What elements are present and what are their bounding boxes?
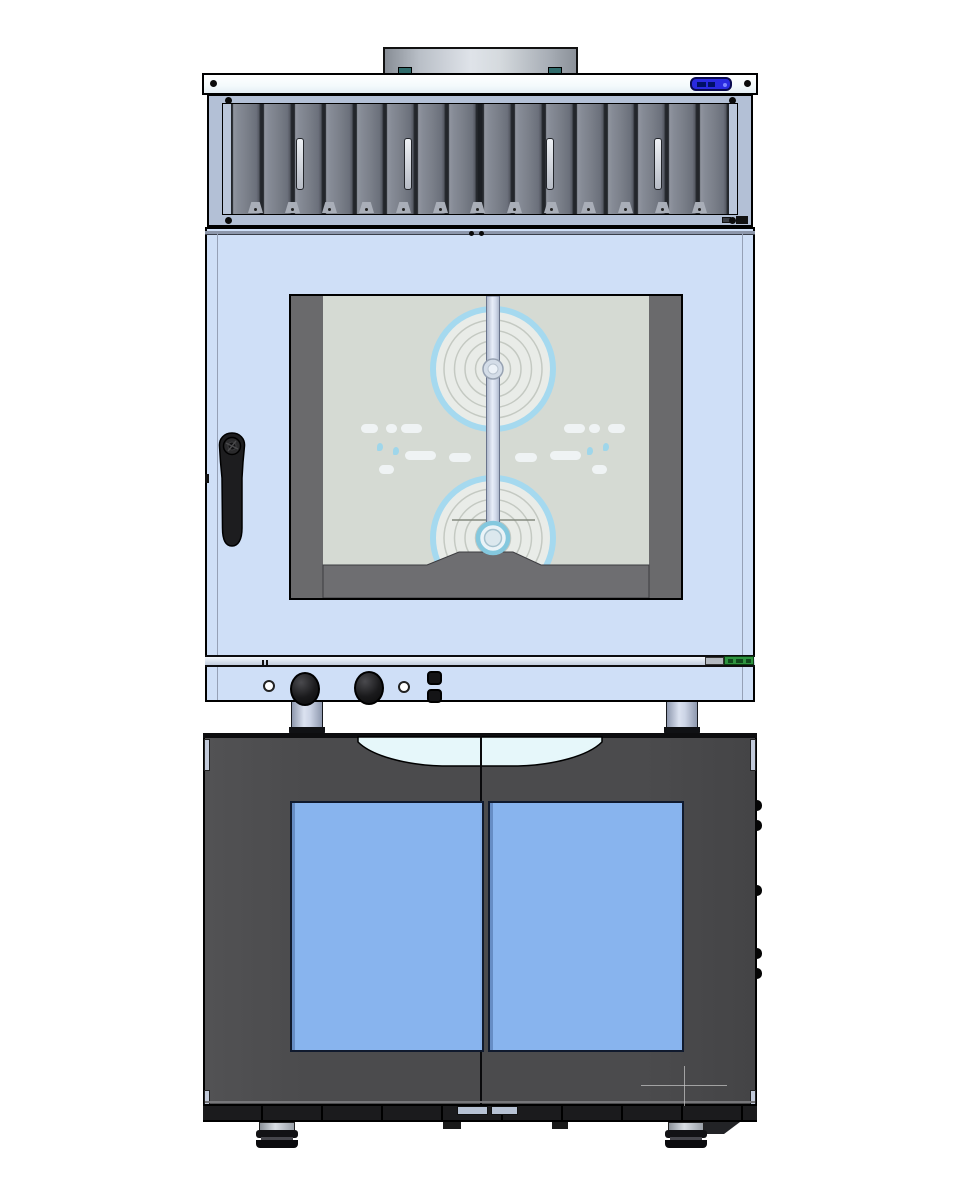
screw-head [729,97,736,104]
oven-stack-render [0,0,970,1200]
separator-tick [262,660,264,665]
oven-leg [291,702,323,737]
seam-rivet [469,231,474,236]
top-cap-panel [202,73,758,95]
base-clip [552,1122,568,1129]
screw-dot [291,208,294,211]
corner-cap [750,739,756,771]
glass-pane [488,801,684,1052]
glass-pane [290,801,484,1052]
hood-slat [231,104,262,214]
steam-vent-pill [589,424,600,433]
hinge-bump [755,820,762,831]
corner-cap [204,739,210,771]
hood-slat [513,104,544,214]
condensation-droplet [377,443,383,451]
hood-slat [667,104,698,214]
hood-filter-handle [654,138,662,190]
oven-leg [666,702,698,737]
hood-latch [736,216,748,224]
indicator-light [398,681,410,693]
condensation-droplet [587,447,593,455]
status-display [690,77,732,91]
hinge-bump [755,968,762,979]
seam-rivet [479,231,484,236]
door-window [289,294,683,600]
hood-slat [636,104,667,214]
control-knob [354,671,384,705]
cabinet-foot-ring [665,1140,707,1148]
push-button [427,671,442,685]
screw-dot [513,208,516,211]
hinge-bump [755,948,762,959]
hood-slat [575,104,606,214]
steam-vent-pill [550,451,581,460]
drain-bracket-wedge [702,1122,740,1134]
steam-vent-pill [379,465,394,474]
cabinet-foot [668,1122,704,1149]
steam-vent-pill [449,453,471,462]
display-segment [697,82,706,87]
screw-head [225,97,232,104]
door-handle [216,430,248,550]
hood-slat [447,104,482,214]
hinge-bump [755,800,762,811]
screw-dot [439,208,442,211]
window-decals [291,296,681,598]
indicator-light [263,680,275,692]
screw-dot [328,208,331,211]
condensation-droplet [393,447,399,455]
condensation-droplet [603,443,609,451]
screw-head [225,217,232,224]
display-dot [723,83,727,87]
hood-slat [262,104,293,214]
hood-slat [416,104,447,214]
door-stop-tab [491,1106,518,1115]
hood-slat [324,104,355,214]
steam-vent-pill [564,424,585,433]
hood-filter-handle [546,138,554,190]
control-knob [290,672,320,706]
hood-slat [355,104,386,214]
screw-head [210,80,217,87]
hood-inner-edge-left [223,104,231,214]
cabinet-foot-ring [256,1140,298,1148]
door-edge-seam-right [742,233,743,700]
door-latch-notch [205,474,209,483]
push-button [427,689,442,703]
cabinet-foot [259,1122,295,1149]
screw-dot [550,208,553,211]
steam-vent-pill [592,465,607,474]
screw-dot [698,208,701,211]
spec-label-gray [705,657,724,665]
screw-dot [587,208,590,211]
screw-dot [365,208,368,211]
steam-vent-pill [386,424,397,433]
hood-filter-handle [404,138,412,190]
hood-slat [482,104,513,214]
base-clip [443,1122,461,1129]
construction-line [684,1066,685,1106]
door-stop-tab [457,1106,488,1115]
hood-slat [698,104,729,214]
control-separator [205,655,755,667]
steam-vent-pill [405,451,436,460]
screw-dot [254,208,257,211]
hood-filter-handle [296,138,304,190]
hood-slat [606,104,637,214]
hinge-bump [755,885,762,896]
steam-vent-pill [361,424,378,433]
separator-tick [266,660,268,665]
screw-dot [476,208,479,211]
steam-vent-pill [608,424,625,433]
screw-dot [402,208,405,211]
base-highlight-line [205,1101,755,1103]
steam-vent-pill [401,424,422,433]
steam-vent-pill [515,453,537,462]
hood-inner-edge-right [729,104,737,214]
screw-dot [661,208,664,211]
screw-head [744,80,751,87]
rating-label-green [724,656,754,665]
screw-dot [624,208,627,211]
display-segment [708,82,715,87]
screw-head [729,217,736,224]
